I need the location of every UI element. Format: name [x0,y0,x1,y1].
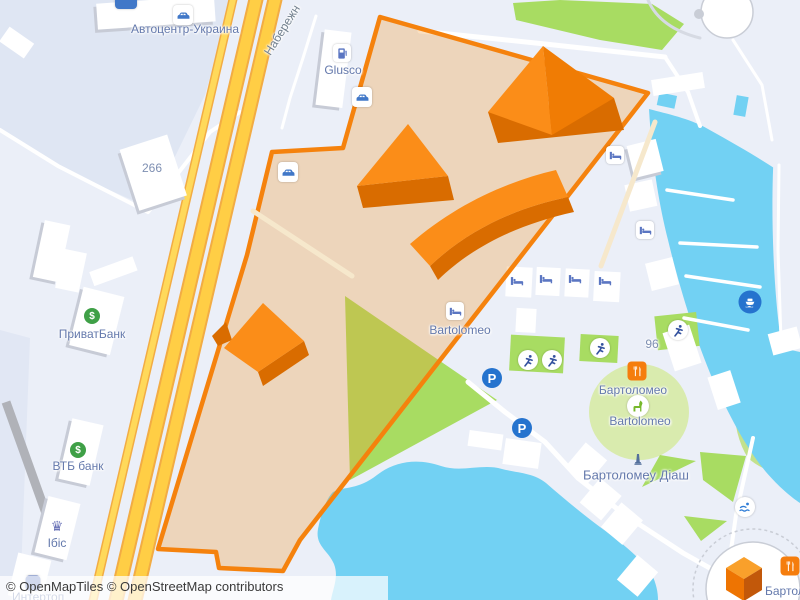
poi-label-ibis: Ібіс [48,536,67,550]
ferry-icon[interactable] [739,291,762,314]
monument-icon[interactable] [632,453,644,465]
poi-label-bartolomeo-attraction: Bartolomeo [609,414,670,428]
hotel-bed-icon[interactable] [446,302,464,320]
bank-icon[interactable]: $ [84,308,100,324]
car-dealer-icon[interactable] [115,0,137,9]
restaurant-icon[interactable] [781,557,800,576]
playground-icon[interactable] [668,320,688,340]
hotel-bed-icon[interactable] [510,276,524,286]
playground-icon[interactable] [542,350,562,370]
hotel-bed-icon[interactable] [598,276,612,286]
fuel-icon[interactable] [333,44,351,62]
attribution-text[interactable]: © OpenMapTiles © OpenStreetMap contribut… [6,579,283,594]
poi-label-autocenter: Автоцентр-Украина [131,22,239,36]
hotel-bed-icon[interactable] [568,274,582,284]
maptiler-logo[interactable] [722,556,766,600]
attribution-bar: © OpenMapTiles © OpenStreetMap contribut… [0,576,388,600]
parking-icon[interactable]: P [512,418,532,438]
hotel-bed-icon[interactable] [636,221,654,239]
poi-label-bartolomeo-hotel: Bartolomeo [429,323,490,337]
housenumber-96: 96 [645,337,658,351]
restaurant-icon[interactable] [628,362,647,381]
hotel-crown-icon[interactable]: ♛ [51,519,64,535]
poi-label-bartolomeo-clipped: Бартоло [765,584,800,598]
hotel-bed-icon[interactable] [606,146,624,164]
park-areas-south [642,452,746,541]
map-canvas[interactable]: $ $ ♛ P P Автоцентр-Украина Набережн Glu… [0,0,800,600]
maptiler-cube-icon [722,556,766,600]
map-tiles [0,0,800,600]
poi-label-bartolomeu-dias: Бартоломеу Діаш [583,468,689,483]
playground-icon[interactable] [590,338,610,358]
car-icon[interactable] [278,162,298,182]
bank-icon[interactable]: $ [70,442,86,458]
parking-icon[interactable]: P [482,368,502,388]
car-icon[interactable] [352,87,372,107]
swimming-icon[interactable] [735,497,755,517]
pond-small [733,95,748,117]
poi-label-privatbank: ПриватБанк [59,327,126,341]
poi-label-glusco: Glusco [324,63,361,77]
poi-label-bartolomeo-restaurant: Бартоломео [599,383,667,397]
playground-icon[interactable] [518,350,538,370]
poi-label-vtb: ВТБ банк [53,459,104,473]
hotel-bed-icon[interactable] [539,274,553,284]
housenumber-266: 266 [142,161,162,175]
